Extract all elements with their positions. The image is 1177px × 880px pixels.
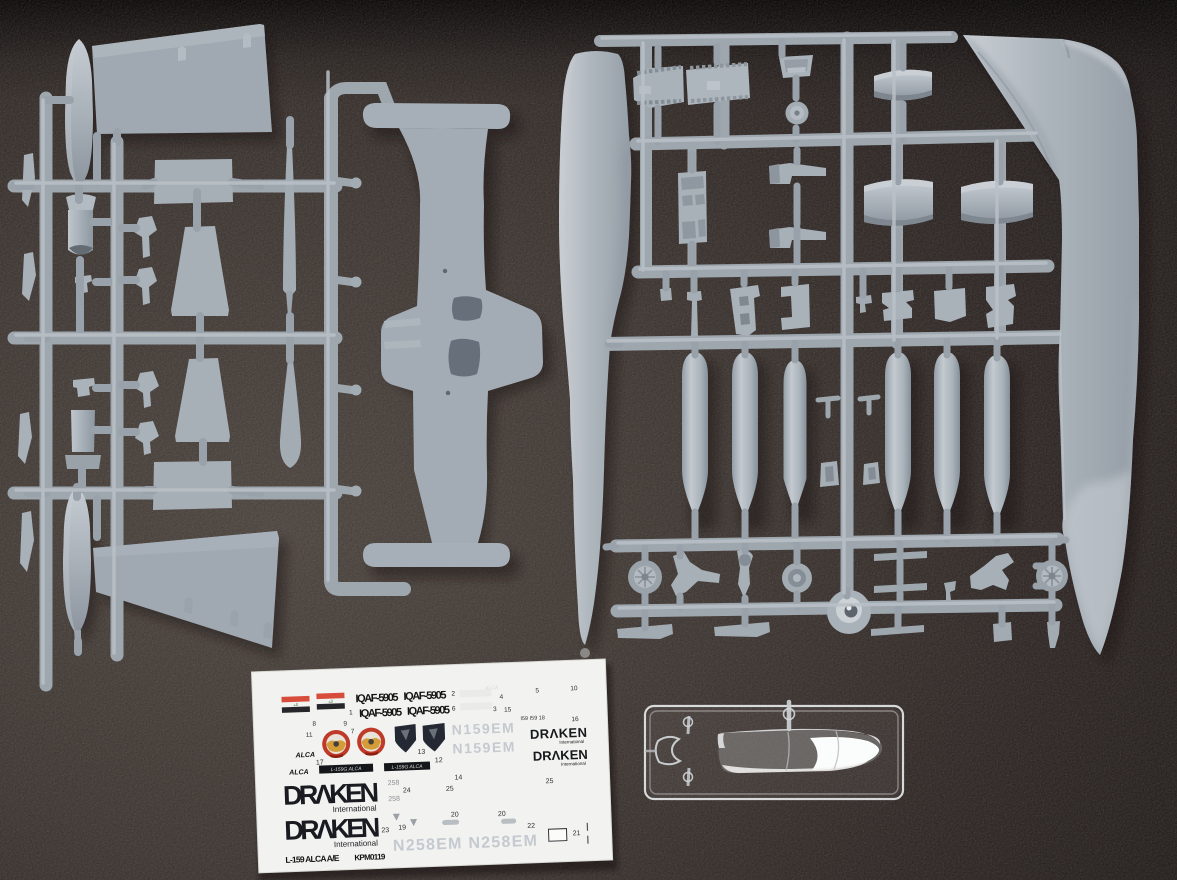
svg-text:IQAF-5905: IQAF-5905 [355, 692, 398, 706]
svg-text:23: 23 [381, 827, 389, 834]
svg-text:International: International [334, 838, 379, 849]
svg-text:1: 1 [349, 709, 353, 716]
svg-text:258: 258 [388, 796, 400, 803]
svg-text:14: 14 [454, 774, 462, 781]
svg-text:ALCA: ALCA [484, 685, 499, 692]
svg-text:6: 6 [452, 706, 456, 713]
svg-text:19: 19 [398, 824, 406, 831]
svg-text:7: 7 [351, 728, 355, 735]
svg-text:4: 4 [499, 694, 503, 701]
svg-text:IQAF-5905: IQAF-5905 [359, 707, 402, 721]
svg-text:International: International [559, 739, 584, 745]
svg-text:12: 12 [435, 757, 443, 764]
svg-text:10: 10 [570, 685, 578, 692]
svg-text:20: 20 [451, 812, 459, 819]
svg-text:13: 13 [417, 749, 425, 756]
svg-text:I59 I59 18: I59 I59 18 [520, 715, 545, 722]
svg-text:24: 24 [403, 787, 411, 794]
svg-text:IQAF-5905: IQAF-5905 [407, 704, 450, 718]
svg-text:KPM0119: KPM0119 [354, 852, 386, 862]
svg-text:25: 25 [546, 778, 554, 785]
svg-text:9: 9 [343, 721, 347, 728]
svg-text:15: 15 [504, 706, 512, 713]
svg-text:IQAF-5905: IQAF-5905 [403, 689, 446, 703]
svg-text:ALCA: ALCA [288, 769, 309, 777]
svg-text:22: 22 [527, 823, 535, 830]
svg-text:3: 3 [493, 706, 497, 713]
svg-text:ALCA: ALCA [294, 752, 315, 760]
svg-text:لله: لله [328, 699, 333, 704]
svg-text:2: 2 [451, 691, 455, 698]
svg-text:لله: لله [293, 702, 298, 707]
svg-text:11: 11 [306, 732, 313, 739]
svg-text:L-159 ALCA A/E: L-159 ALCA A/E [285, 853, 340, 865]
svg-text:5: 5 [535, 687, 539, 694]
svg-text:21: 21 [573, 830, 581, 837]
svg-text:20: 20 [498, 811, 506, 818]
svg-text:25: 25 [446, 786, 454, 793]
svg-text:16: 16 [571, 716, 579, 723]
svg-text:N159EM: N159EM [451, 719, 514, 737]
svg-text:L-159G ALCA: L-159G ALCA [331, 766, 363, 773]
svg-text:L-159G ALCA: L-159G ALCA [392, 764, 424, 771]
svg-text:258: 258 [388, 780, 400, 787]
svg-text:International: International [561, 761, 586, 767]
svg-text:N159EM: N159EM [452, 738, 515, 756]
svg-text:8: 8 [312, 721, 316, 728]
